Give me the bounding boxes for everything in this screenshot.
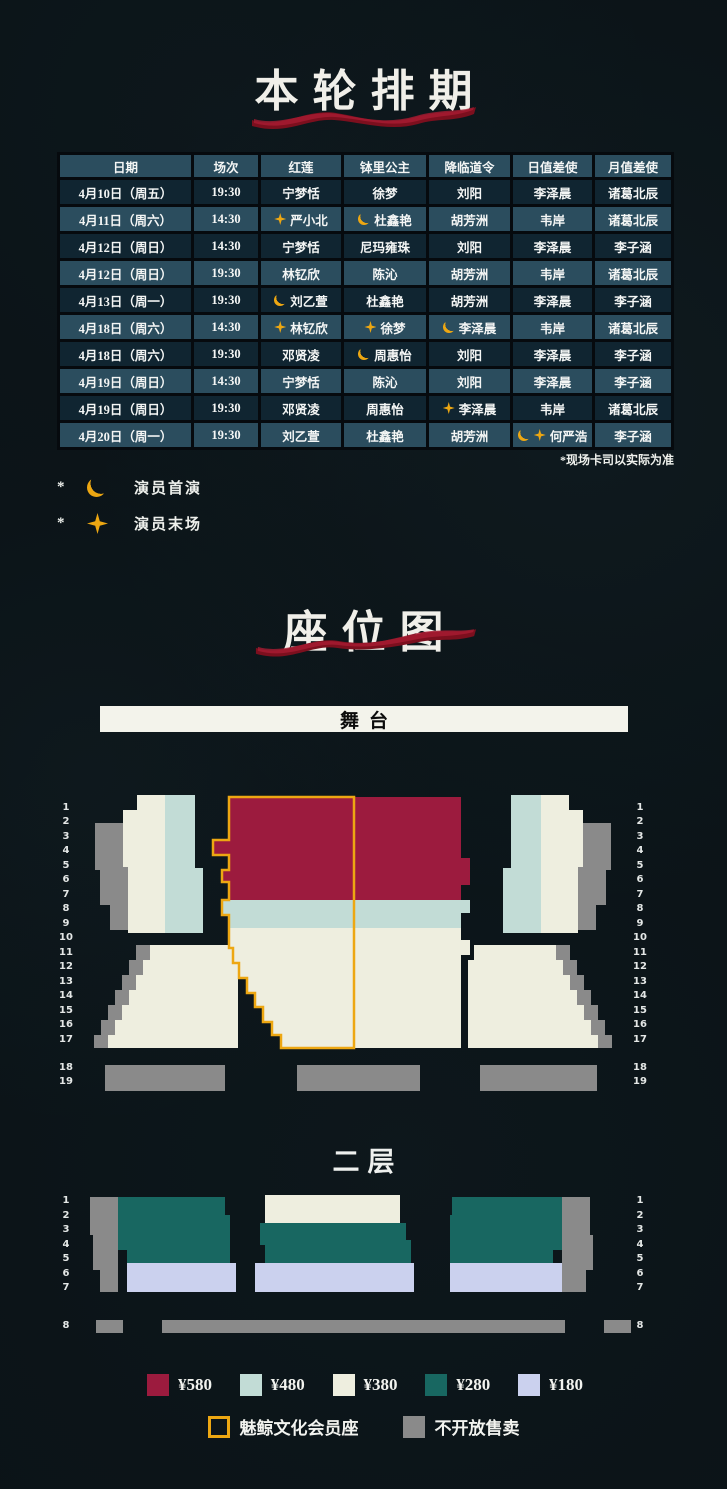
seats-center-480 bbox=[222, 900, 470, 928]
moon-icon bbox=[358, 348, 370, 360]
seatmap-title-ribbon bbox=[252, 622, 482, 660]
schedule-cell: 邓贤凌 bbox=[261, 342, 341, 366]
floor2-right-blocked bbox=[562, 1197, 593, 1292]
seats-center-380 bbox=[229, 928, 470, 1048]
column-header: 月值差使 bbox=[595, 155, 671, 177]
floor1-seatmap bbox=[0, 785, 727, 1100]
schedule-cell: 李泽晨 bbox=[513, 234, 592, 258]
schedule-cell: 4月19日（周日） bbox=[60, 396, 191, 420]
price-label: ¥580 bbox=[178, 1375, 212, 1395]
schedule-cell: 杜鑫艳 bbox=[344, 288, 426, 312]
unavailable-swatch bbox=[403, 1416, 425, 1438]
floor2-center-180 bbox=[255, 1263, 414, 1292]
schedule-cell: 韦岸 bbox=[513, 261, 592, 285]
asterisk: * bbox=[57, 479, 87, 496]
schedule-cell: 19:30 bbox=[194, 396, 258, 420]
schedule-cell: 胡芳洲 bbox=[429, 288, 510, 312]
seats-left-upper-480 bbox=[165, 795, 203, 933]
seats-left-upper-380 bbox=[123, 795, 165, 933]
legend-debut-label: 演员首演 bbox=[134, 477, 202, 498]
schedule-cell: 胡芳洲 bbox=[429, 261, 510, 285]
price-legend-item: ¥180 bbox=[518, 1374, 583, 1396]
schedule-cell: 何严浩 bbox=[513, 423, 592, 447]
schedule-cell: 诸葛北辰 bbox=[595, 396, 671, 420]
schedule-cell: 李泽晨 bbox=[429, 396, 510, 420]
schedule-cell: 宁梦恬 bbox=[261, 180, 341, 204]
asterisk: * bbox=[57, 515, 87, 532]
seats-row18-19-right-blocked bbox=[480, 1065, 597, 1091]
schedule-cell: 李子涵 bbox=[595, 342, 671, 366]
moon-icon bbox=[274, 294, 286, 306]
floor2-center-380 bbox=[265, 1195, 400, 1223]
price-legend-item: ¥580 bbox=[147, 1374, 212, 1396]
schedule-cell: 4月18日（周六） bbox=[60, 315, 191, 339]
schedule-cell: 刘阳 bbox=[429, 180, 510, 204]
schedule-cell: 诸葛北辰 bbox=[595, 315, 671, 339]
schedule-cell: 李子涵 bbox=[595, 369, 671, 393]
schedule-cell: 胡芳洲 bbox=[429, 423, 510, 447]
floor2-left-blocked bbox=[90, 1197, 118, 1292]
price-swatch bbox=[147, 1374, 169, 1396]
price-label: ¥480 bbox=[271, 1375, 305, 1395]
schedule-cell: 4月10日（周五） bbox=[60, 180, 191, 204]
schedule-cell: 李泽晨 bbox=[513, 369, 592, 393]
schedule-cell: 陈沁 bbox=[344, 261, 426, 285]
column-header: 钵里公主 bbox=[344, 155, 426, 177]
ticketing-page: 本轮排期 日期 场次 红莲 钵里公主 降临道令 日值差使 月值差使 4月10日（… bbox=[0, 0, 727, 1489]
schedule-cell: 刘阳 bbox=[429, 369, 510, 393]
schedule-cell: 19:30 bbox=[194, 180, 258, 204]
seats-right-upper-380 bbox=[541, 795, 583, 933]
price-legend-item: ¥280 bbox=[425, 1374, 490, 1396]
schedule-cell: 4月19日（周日） bbox=[60, 369, 191, 393]
legend-final: * 演员末场 bbox=[57, 513, 202, 534]
column-header: 日期 bbox=[60, 155, 191, 177]
schedule-title-ribbon bbox=[248, 98, 482, 136]
schedule-cell: 14:30 bbox=[194, 315, 258, 339]
special-legend: 魅鲸文化会员座不开放售卖 bbox=[0, 1414, 727, 1439]
schedule-cell: 林钇欣 bbox=[261, 315, 341, 339]
schedule-cell: 诸葛北辰 bbox=[595, 180, 671, 204]
schedule-cell: 19:30 bbox=[194, 261, 258, 285]
column-header: 场次 bbox=[194, 155, 258, 177]
schedule-cell: 19:30 bbox=[194, 423, 258, 447]
floor2-right-280 bbox=[450, 1197, 562, 1263]
schedule-cell: 杜鑫艳 bbox=[344, 207, 426, 231]
schedule-cell: 14:30 bbox=[194, 207, 258, 231]
schedule-cell: 刘乙萱 bbox=[261, 288, 341, 312]
unavailable-legend-item: 不开放售卖 bbox=[403, 1414, 520, 1439]
moon-icon bbox=[443, 321, 455, 333]
schedule-cell: 刘阳 bbox=[429, 234, 510, 258]
schedule-cell: 李泽晨 bbox=[513, 288, 592, 312]
schedule-cell: 李泽晨 bbox=[513, 180, 592, 204]
schedule-cell: 诸葛北辰 bbox=[595, 207, 671, 231]
schedule-cell: 韦岸 bbox=[513, 207, 592, 231]
price-legend-item: ¥480 bbox=[240, 1374, 305, 1396]
price-legend: ¥580¥480¥380¥280¥180 bbox=[147, 1374, 583, 1396]
stage-bar: 舞台 bbox=[100, 706, 628, 732]
schedule-cell: 4月12日（周日） bbox=[60, 234, 191, 258]
member-swatch bbox=[208, 1416, 230, 1438]
schedule-cell: 周惠怡 bbox=[344, 342, 426, 366]
schedule-cell: 刘乙萱 bbox=[261, 423, 341, 447]
star-icon bbox=[274, 321, 286, 333]
schedule-cell: 19:30 bbox=[194, 288, 258, 312]
schedule-cell: 韦岸 bbox=[513, 396, 592, 420]
floor2-label: 二层 bbox=[0, 1140, 727, 1179]
floor2-left-180 bbox=[127, 1263, 236, 1292]
member-label: 魅鲸文化会员座 bbox=[240, 1414, 359, 1439]
floor2-row8-right-blocked bbox=[604, 1320, 631, 1333]
schedule-cell: 周惠怡 bbox=[344, 396, 426, 420]
floor2-row8-left-blocked bbox=[96, 1320, 123, 1333]
price-label: ¥380 bbox=[364, 1375, 398, 1395]
star-icon bbox=[274, 213, 286, 225]
price-swatch bbox=[425, 1374, 447, 1396]
schedule-cell: 邓贤凌 bbox=[261, 396, 341, 420]
schedule-cell: 4月18日（周六） bbox=[60, 342, 191, 366]
schedule-cell: 4月12日（周日） bbox=[60, 261, 191, 285]
schedule-cell: 李子涵 bbox=[595, 234, 671, 258]
floor2-left-280 bbox=[118, 1197, 230, 1263]
star-icon bbox=[87, 513, 108, 534]
member-legend-item: 魅鲸文化会员座 bbox=[208, 1414, 359, 1439]
floor2-seatmap bbox=[0, 1185, 727, 1345]
schedule-cell: 严小北 bbox=[261, 207, 341, 231]
star-icon bbox=[534, 429, 546, 441]
schedule-cell: 杜鑫艳 bbox=[344, 423, 426, 447]
schedule-cell: 陈沁 bbox=[344, 369, 426, 393]
seats-row18-19-center-blocked bbox=[297, 1065, 420, 1091]
schedule-note: *现场卡司以实际为准 bbox=[560, 451, 674, 468]
schedule-cell: 李泽晨 bbox=[513, 342, 592, 366]
schedule-cell: 李子涵 bbox=[595, 423, 671, 447]
schedule-cell: 4月11日（周六） bbox=[60, 207, 191, 231]
schedule-table: 日期 场次 红莲 钵里公主 降临道令 日值差使 月值差使 4月10日（周五）19… bbox=[57, 152, 674, 450]
schedule-cell: 胡芳洲 bbox=[429, 207, 510, 231]
star-icon bbox=[364, 321, 376, 333]
seats-row18-19-left-blocked bbox=[105, 1065, 225, 1091]
seats-center-580 bbox=[213, 797, 470, 900]
floor2-row8-center-blocked bbox=[162, 1320, 565, 1333]
column-header: 降临道令 bbox=[429, 155, 510, 177]
column-header: 红莲 bbox=[261, 155, 341, 177]
schedule-cell: 徐梦 bbox=[344, 180, 426, 204]
schedule-cell: 14:30 bbox=[194, 369, 258, 393]
schedule-cell: 韦岸 bbox=[513, 315, 592, 339]
schedule-cell: 宁梦恬 bbox=[261, 369, 341, 393]
schedule-cell: 宁梦恬 bbox=[261, 234, 341, 258]
schedule-cell: 林钇欣 bbox=[261, 261, 341, 285]
price-label: ¥180 bbox=[549, 1375, 583, 1395]
moon-icon bbox=[518, 429, 530, 441]
price-swatch bbox=[333, 1374, 355, 1396]
schedule-cell: 李子涵 bbox=[595, 288, 671, 312]
schedule-cell: 14:30 bbox=[194, 234, 258, 258]
seats-right-upper-480 bbox=[503, 795, 541, 933]
price-swatch bbox=[518, 1374, 540, 1396]
price-label: ¥280 bbox=[456, 1375, 490, 1395]
schedule-cell: 4月13日（周一） bbox=[60, 288, 191, 312]
legend-final-label: 演员末场 bbox=[134, 513, 202, 534]
schedule-cell: 刘阳 bbox=[429, 342, 510, 366]
stage-label: 舞台 bbox=[330, 706, 398, 733]
legend-debut: * 演员首演 bbox=[57, 477, 202, 498]
schedule-cell: 李泽晨 bbox=[429, 315, 510, 339]
price-swatch bbox=[240, 1374, 262, 1396]
column-header: 日值差使 bbox=[513, 155, 592, 177]
schedule-cell: 徐梦 bbox=[344, 315, 426, 339]
floor2-center-280 bbox=[260, 1223, 411, 1263]
schedule-cell: 19:30 bbox=[194, 342, 258, 366]
schedule-cell: 尼玛雍珠 bbox=[344, 234, 426, 258]
star-icon bbox=[443, 402, 455, 414]
unavailable-label: 不开放售卖 bbox=[435, 1414, 520, 1439]
schedule-cell: 4月20日（周一） bbox=[60, 423, 191, 447]
price-legend-item: ¥380 bbox=[333, 1374, 398, 1396]
moon-icon bbox=[87, 478, 106, 497]
moon-icon bbox=[358, 213, 370, 225]
floor2-right-180 bbox=[450, 1263, 569, 1292]
schedule-cell: 诸葛北辰 bbox=[595, 261, 671, 285]
